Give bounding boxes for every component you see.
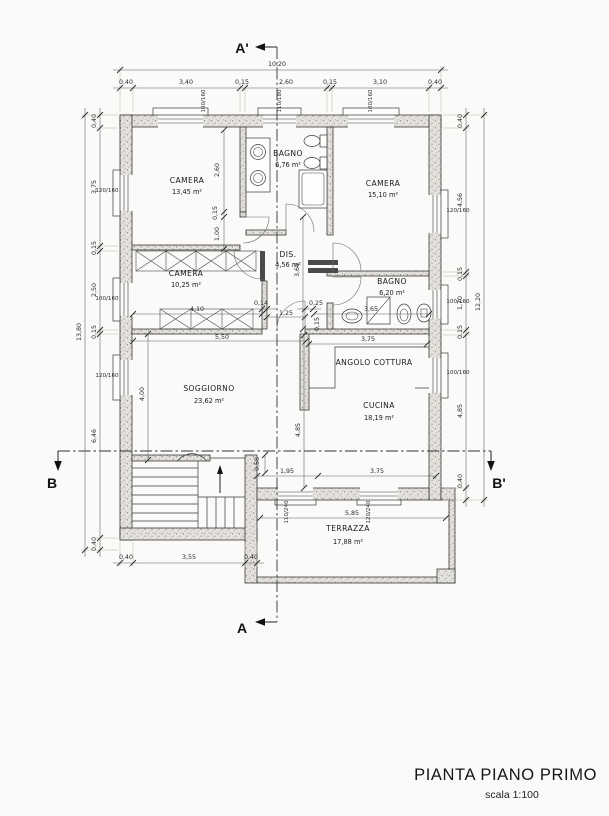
window-top-center: [263, 115, 296, 128]
terrace-corner-post-se: [437, 569, 455, 583]
section-b-left-arrow-icon: [54, 461, 62, 471]
wardrobes: [136, 251, 338, 329]
bidet-tank: [320, 157, 327, 169]
threshold: [357, 500, 401, 505]
terrace-corner-post-ne: [441, 488, 455, 500]
room-area-dis: 4,56 m²: [275, 261, 301, 269]
winsize-left-lower: 120/160: [95, 373, 119, 379]
winsize-right-middle: 100/160: [446, 299, 470, 305]
window-left-lower: [120, 360, 133, 395]
door-leaf-camera-w: [260, 251, 265, 281]
room-label-dis: DIS.: [280, 250, 297, 259]
stair-treads-right: [207, 497, 234, 528]
dim-bagno-mid-width: 3,65: [364, 306, 378, 313]
window-left-middle: [120, 283, 133, 316]
wall-stair-north: [132, 455, 210, 461]
wall-bagno-mid-south: [305, 329, 429, 334]
room-label-soggiorno: SOGGIORNO: [183, 384, 234, 393]
dim-terrace-span: 3,75: [370, 468, 384, 475]
wall-bath-top-left: [240, 127, 246, 212]
wall-bath-top-stub-south: [246, 230, 286, 235]
dim-terrace-door-span: 1,95: [280, 468, 294, 475]
sill: [153, 108, 208, 115]
room-area-camera-ne: 15,10 m²: [368, 191, 398, 199]
door-camera-w: [234, 251, 262, 279]
room-area-cucina: 18,19 m²: [364, 414, 394, 422]
dim-stair-landing: 0,58: [254, 457, 261, 471]
dim-bottom-1: 3,55: [182, 554, 196, 561]
wall-bath-top-left-stub: [240, 212, 246, 217]
dim-left-0: 0,40: [91, 114, 98, 128]
bidet-icon: [417, 304, 431, 322]
window-right-upper: [429, 195, 442, 233]
dim-right-1: 4,56: [457, 193, 464, 207]
bathtub-icon: [299, 170, 327, 208]
dim-right-4: 0,15: [457, 325, 464, 339]
toilet-tank: [320, 135, 327, 147]
dim-right-total: 12,20: [475, 293, 482, 311]
bathroom-top-fixtures: [246, 135, 327, 208]
window-top-left: [158, 115, 203, 128]
dim-cucina-depth: 4,85: [295, 423, 302, 437]
winsize-right-lower: 100/160: [446, 370, 470, 376]
window-top-right: [348, 115, 394, 128]
sink-icon: [342, 309, 362, 323]
floor-plan-svg: A' A B B' 10,20 0,40 3,40 0,15 2,60 0,15…: [0, 0, 609, 816]
window-right-lower: [429, 358, 442, 393]
wall-camera-w-south: [132, 329, 262, 334]
room-label-bagno-mid: BAGNO: [377, 277, 407, 286]
room-area-bagno-mid: 6,20 m²: [379, 289, 405, 297]
dim-top-5: 3,10: [373, 79, 387, 86]
dim-terrazza-width: 5,85: [345, 510, 359, 517]
winsize-top-left: 100/160: [201, 89, 207, 113]
title-block: PIANTA PIANO PRIMO scala 1:100: [414, 766, 597, 801]
dim-left-2: 0,15: [91, 241, 98, 255]
dim-top-3: 2,60: [279, 79, 293, 86]
ext-left: [81, 115, 118, 550]
room-label-terrazza: TERRAZZA: [325, 524, 370, 533]
dim-dis-door: 1,25: [279, 310, 293, 317]
terrace-parapet-bottom: [257, 577, 455, 583]
room-area-bagno-top: 6,76 m²: [275, 161, 301, 169]
section-marker-a-bottom: A: [237, 620, 247, 636]
dim-right-5: 4,85: [457, 404, 464, 418]
dim-left-total: 13,80: [76, 323, 83, 341]
room-label-camera-nw: CAMERA: [170, 176, 205, 185]
room-labels: CAMERA 13,45 m² BAGNO 6,76 m² CAMERA 15,…: [169, 149, 413, 546]
winsize-left-middle: 100/160: [95, 296, 119, 302]
wall-stair-east: [245, 455, 257, 583]
staircase: [132, 454, 245, 529]
dim-camera-nw-door: 1,00: [214, 227, 221, 241]
room-area-terrazza: 17,88 m²: [333, 538, 363, 546]
page-title: PIANTA PIANO PRIMO: [414, 766, 597, 784]
toilet-icon: [304, 136, 320, 147]
section-marker-b-left: B: [47, 475, 57, 491]
room-area-soggiorno: 23,62 m²: [194, 397, 224, 405]
dim-soggiorno-depth: 4,00: [139, 387, 146, 401]
stair-up-arrow-icon: [217, 465, 223, 474]
bathroom-mid-fixt ures: [342, 297, 431, 324]
dim-top-4: 0,15: [323, 79, 337, 86]
dim-dis-wall: 0,14: [254, 300, 268, 307]
sliding-door-symbol: [308, 268, 338, 273]
room-label-camera-w: CAMERA: [169, 269, 204, 278]
dim-bottom-2: 0,40: [244, 554, 258, 561]
dim-top-6: 0,40: [428, 79, 442, 86]
wardrobe-x-pattern: [160, 309, 253, 329]
bidet-icon: [304, 158, 320, 169]
dim-chain-top: 10,20 0,40 3,40 0,15 2,60 0,15 3,10 0,40: [113, 61, 448, 91]
dim-chain-left: 13,80 0,40 3,75 0,15 2,50 0,15 6,46 0,40: [76, 108, 103, 557]
dim-left-5: 6,46: [91, 429, 98, 443]
section-marker-b-right: B': [492, 475, 505, 491]
dim-chain-right: 12,20 0,40 4,56 0,15 1,70 0,15 4,85 0,40: [457, 108, 487, 507]
winsize-top-right: 100/160: [368, 89, 374, 113]
dim-soggiorno-width: 5,50: [215, 334, 229, 341]
terrace-door-left: [278, 488, 313, 501]
dim-left-3: 2,50: [91, 283, 98, 297]
dims-interior: 2,60 0,15 1,00 4,10 5,50 0,14 1,25 0,25 …: [130, 127, 449, 521]
winsize-right-upper: 120/160: [446, 208, 470, 214]
winsize-left-upper: 120/160: [95, 188, 119, 194]
dim-top-2: 0,15: [235, 79, 249, 86]
dim-left-4: 0,15: [91, 325, 98, 339]
wall-bagno-mid-west: [327, 303, 333, 329]
wall-camera-ne-south: [327, 271, 429, 276]
dim-left-6: 0,40: [91, 537, 98, 551]
room-label-cucina: CUCINA: [363, 401, 395, 410]
door-bagno-mid: [333, 277, 361, 305]
section-a-bottom-arrow-icon: [255, 618, 265, 626]
terrace-parapet-right: [449, 500, 455, 577]
dim-right-0: 0,40: [457, 114, 464, 128]
sill: [441, 190, 448, 238]
section-b-right-arrow-icon: [487, 461, 495, 471]
dim-camera-w-width: 4,10: [190, 306, 204, 313]
room-area-camera-nw: 13,45 m²: [172, 188, 202, 196]
dim-cucina-width: 3,75: [361, 336, 375, 343]
wall-bath-top-right: [327, 127, 333, 235]
room-area-camera-w: 10,25 m²: [171, 281, 201, 289]
scale-note: scala 1:100: [485, 789, 539, 801]
wall-south-west: [120, 528, 257, 540]
dim-camera-nw-wall: 0,15: [212, 206, 219, 220]
dim-top-0: 0,40: [119, 79, 133, 86]
section-marker-a-top: A': [235, 40, 248, 56]
dim-chain-bottom: 0,40 3,55 0,40: [113, 554, 264, 566]
sink-icon: [251, 145, 266, 160]
dim-dis-wall2: 0,15: [314, 317, 321, 331]
winsize-terrace-left: 110/240: [284, 500, 290, 524]
stair-treads-left: [132, 468, 198, 521]
dim-top-total: 10,20: [268, 61, 286, 68]
winsize-top-center: 110/180: [277, 89, 283, 113]
dim-right-2: 0,15: [457, 267, 464, 281]
section-a-top-arrow-icon: [255, 43, 265, 51]
room-label-angolo-cottura: ANGOLO COTTURA: [336, 358, 413, 367]
window-left-upper: [120, 175, 133, 211]
sliding-door-symbol: [308, 260, 338, 265]
door-camera-ne: [333, 243, 361, 271]
winsize-terrace-right: 120/240: [366, 500, 372, 524]
terrace-door-right: [360, 488, 398, 501]
sink-icon: [251, 171, 266, 186]
room-label-bagno-top: BAGNO: [273, 149, 303, 158]
dim-right-6: 0,40: [457, 474, 464, 488]
dim-camera-nw-depth: 2,60: [214, 163, 221, 177]
wardrobe-x-pattern: [136, 251, 256, 271]
room-label-camera-ne: CAMERA: [366, 179, 401, 188]
angolo-cottura-boundary: [309, 347, 429, 388]
dim-dis-stub: 0,25: [309, 300, 323, 307]
drawing-sheet: A' A B B' 10,20 0,40 3,40 0,15 2,60 0,15…: [0, 0, 609, 816]
dim-bottom-0: 0,40: [119, 554, 133, 561]
dim-top-1: 3,40: [179, 79, 193, 86]
threshold: [275, 500, 316, 505]
